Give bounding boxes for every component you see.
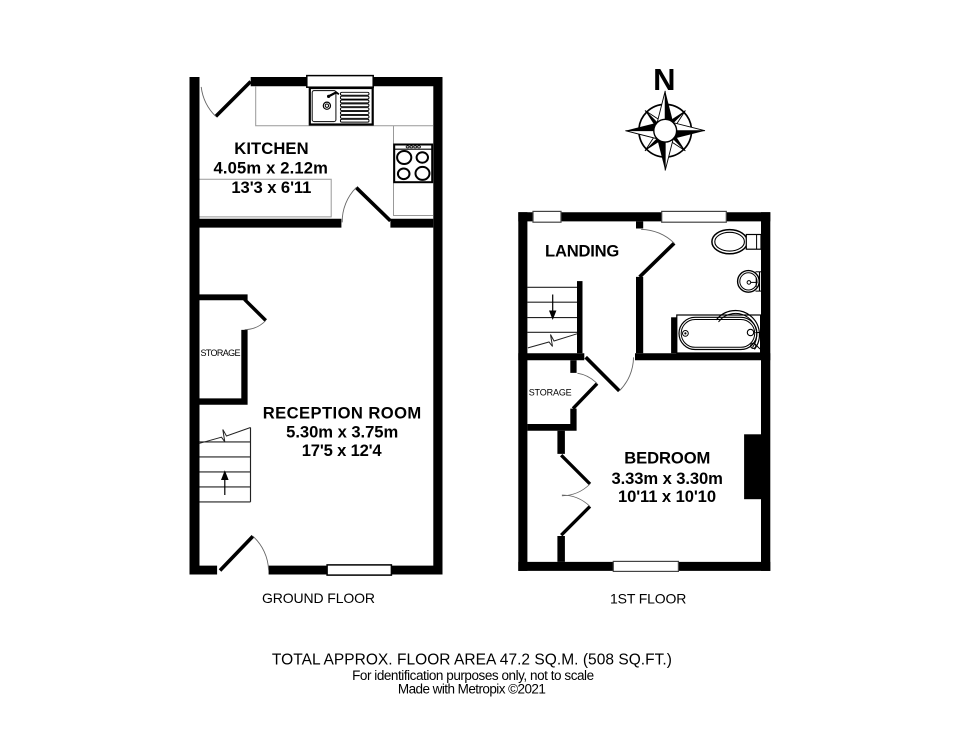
svg-text:10'11 x 10'10: 10'11 x 10'10	[618, 487, 716, 506]
svg-text:RECEPTION ROOM: RECEPTION ROOM	[263, 403, 422, 422]
svg-text:17'5 x 12'4: 17'5 x 12'4	[302, 441, 383, 460]
svg-text:Made with Metropix ©2021: Made with Metropix ©2021	[398, 681, 546, 696]
svg-text:5.30m x 3.75m: 5.30m x 3.75m	[286, 423, 398, 442]
svg-text:STORAGE: STORAGE	[201, 348, 241, 358]
svg-text:13'3 x 6'11: 13'3 x 6'11	[231, 178, 311, 197]
svg-text:BEDROOM: BEDROOM	[624, 448, 710, 467]
svg-text:TOTAL APPROX. FLOOR AREA 47.2: TOTAL APPROX. FLOOR AREA 47.2 SQ.M. (508…	[272, 652, 672, 669]
svg-text:LANDING: LANDING	[545, 241, 619, 260]
svg-text:3.33m x 3.30m: 3.33m x 3.30m	[612, 469, 723, 488]
svg-text:N: N	[653, 62, 675, 97]
svg-text:STORAGE: STORAGE	[529, 388, 572, 398]
svg-text:KITCHEN: KITCHEN	[234, 139, 308, 158]
svg-text:4.05m x 2.12m: 4.05m x 2.12m	[214, 159, 328, 178]
svg-text:GROUND FLOOR: GROUND FLOOR	[262, 590, 375, 606]
svg-text:1ST FLOOR: 1ST FLOOR	[610, 590, 686, 606]
